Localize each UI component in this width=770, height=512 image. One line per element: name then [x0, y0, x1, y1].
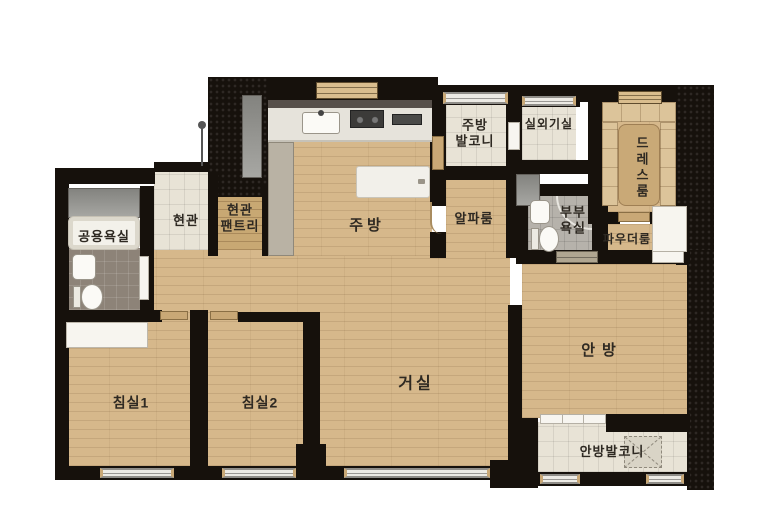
bedroom1-closet: [66, 322, 148, 348]
wall-segment: [190, 310, 208, 466]
room-entrance-floor: [154, 172, 208, 250]
sink: [530, 200, 550, 224]
window: [100, 468, 174, 478]
room-label-kitchen-balcony: 주방 발코니: [456, 117, 495, 148]
toilet-tank: [531, 228, 539, 250]
kitchen-tall-cabinet: [268, 142, 294, 256]
window: [646, 474, 684, 484]
room-label-master-balcony: 안방발코니: [580, 444, 645, 460]
room-outdoor-unit-floor: [522, 107, 576, 160]
window: [316, 82, 378, 99]
wall-segment: [55, 168, 155, 184]
wall-segment: [508, 418, 538, 462]
sink: [72, 254, 96, 280]
kitchen-faucet: [318, 110, 324, 116]
wall-segment: [508, 305, 522, 420]
room-label-entrance: 현관: [173, 213, 199, 229]
balcony-sliding-door: [540, 414, 606, 424]
room-label-shared-bathroom: 공용욕실: [78, 229, 130, 245]
toilet: [81, 284, 103, 310]
entrance-marker-knob-icon: [198, 121, 206, 129]
duct-shaft: [242, 95, 262, 178]
island-handle: [418, 179, 425, 184]
wall-segment: [296, 444, 326, 466]
floor-plan: 공용욕실 현관 현관 팬트리 주방 주방 발코니 실외기실 드레스룸 알파룸 부…: [0, 0, 770, 512]
room-label-kitchen: 주방: [349, 217, 385, 235]
window: [222, 468, 296, 478]
wardrobe: [602, 122, 618, 206]
outdoor-unit-room-door: [508, 122, 520, 150]
dress-room-door: [618, 212, 650, 222]
entrance-marker-icon: [201, 128, 203, 166]
window: [443, 92, 508, 104]
room-label-alpha-room: 알파룸: [455, 211, 494, 227]
window: [522, 96, 576, 106]
window: [618, 91, 662, 104]
bedroom1-door: [160, 311, 188, 320]
room-label-bedroom2: 침실2: [242, 395, 279, 412]
window: [344, 468, 490, 478]
room-label-master-bathroom: 부부 욕실: [560, 204, 586, 235]
wardrobe: [602, 102, 676, 122]
kitchen-balcony-door: [432, 136, 444, 170]
room-label-powder-room: 파우더룸: [603, 232, 651, 246]
kitchen-appliance: [392, 114, 422, 125]
wall-segment: [430, 232, 446, 258]
toilet-tank: [73, 286, 81, 308]
alpha-room-folding-door: [430, 202, 443, 234]
toilet: [539, 226, 559, 252]
room-label-living-room: 거실: [398, 374, 433, 393]
wall-segment: [490, 460, 538, 488]
bedroom2-door: [210, 311, 238, 320]
duct-shaft: [68, 188, 140, 218]
room-label-outdoor-unit-room: 실외기실: [525, 117, 573, 131]
master-bathroom-sliding-door: [556, 251, 598, 263]
shared-bathroom-door: [139, 256, 149, 300]
powder-room-vanity: [652, 206, 687, 252]
wall-segment: [687, 250, 714, 490]
wall-segment: [208, 172, 218, 256]
stove: [350, 110, 384, 128]
wall-segment: [154, 162, 216, 172]
wall-segment: [606, 414, 690, 432]
room-label-master-bedroom: 안방: [581, 342, 623, 360]
room-label-dress-room: 드레스룸: [632, 136, 651, 200]
window: [540, 474, 580, 484]
room-label-entrance-pantry: 현관 팬트리: [221, 202, 260, 233]
wardrobe: [660, 122, 676, 206]
room-master-bedroom-floor: [522, 264, 687, 418]
master-bedroom-door: [652, 251, 684, 263]
wall-segment: [303, 312, 320, 466]
wall-segment: [62, 310, 162, 322]
room-label-bedroom1: 침실1: [113, 395, 150, 412]
